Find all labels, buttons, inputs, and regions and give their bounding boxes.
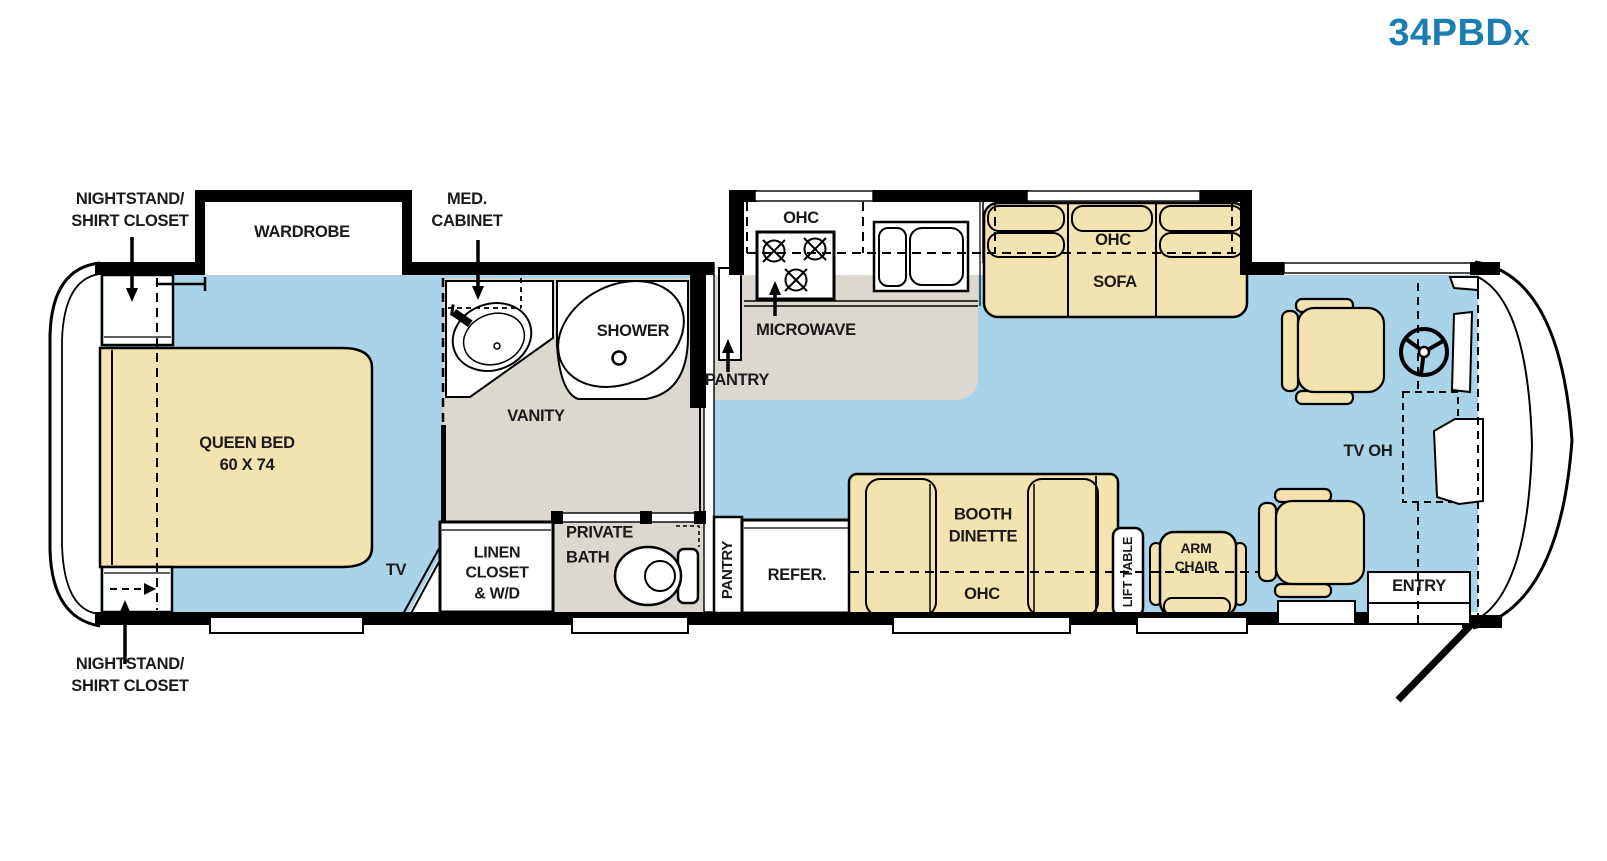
- bedroom-bath-wall: [441, 425, 446, 522]
- label-pantry-upper: PANTRY: [705, 370, 769, 392]
- label-tv-oh: TV OH: [1344, 441, 1393, 463]
- label-private-bath: PRIVATE BATH: [566, 520, 633, 570]
- driver-seat: [1282, 299, 1384, 404]
- label-nightstand-shirt-closet-top: NIGHTSTAND/ SHIRT CLOSET: [71, 189, 188, 233]
- slideout-window: [755, 191, 873, 201]
- slideout-window: [1027, 191, 1200, 201]
- label-lift-table: LIFT TABLE: [1120, 537, 1137, 608]
- label-shower: SHOWER: [597, 321, 669, 343]
- label-arm-chair: ARM CHAIR: [1175, 539, 1218, 575]
- sofa: [983, 202, 1247, 317]
- label-sofa: SOFA: [1093, 272, 1137, 294]
- label-tv: TV: [386, 560, 406, 582]
- label-ohc-booth: OHC: [964, 584, 1000, 606]
- model-title: 34PBDx: [1315, 12, 1530, 55]
- label-linen-closet: LINEN CLOSET & W/D: [465, 543, 528, 604]
- label-queen-bed: QUEEN BED 60 X 74: [199, 433, 294, 477]
- label-wardrobe: WARDROBE: [254, 222, 350, 244]
- model-number: 34PBD: [1388, 12, 1513, 54]
- kitchen-sink-icon: [874, 222, 968, 291]
- label-pantry-lower: PANTRY: [718, 541, 738, 599]
- entry-door-open: [1398, 626, 1470, 700]
- label-booth-dinette: BOOTH DINETTE: [949, 504, 1017, 549]
- stove-icon: [757, 232, 834, 299]
- label-vanity: VANITY: [507, 406, 564, 428]
- label-refer: REFER.: [768, 565, 827, 587]
- label-ohc-kitchen: OHC: [783, 208, 819, 230]
- label-entry: ENTRY: [1392, 576, 1446, 598]
- label-microwave: MICROWAVE: [756, 320, 856, 342]
- nightstand-bottom: [102, 567, 172, 612]
- model-suffix: x: [1513, 20, 1530, 52]
- nightstand-top: [102, 275, 173, 345]
- label-ohc-sofa: OHC: [1095, 230, 1131, 252]
- entry-step-landing: [1278, 601, 1355, 624]
- label-nightstand-shirt-closet-bottom: NIGHTSTAND/ SHIRT CLOSET: [71, 654, 188, 698]
- floorplan-svg: [0, 0, 1607, 861]
- windshield-curve: [1476, 277, 1532, 620]
- front-window: [1284, 263, 1472, 273]
- floorplan-page: 34PBDx NIGHTSTAND/ SHIRT CLOSET WARDROBE…: [0, 0, 1607, 861]
- label-med-cabinet: MED. CABINET: [431, 189, 502, 233]
